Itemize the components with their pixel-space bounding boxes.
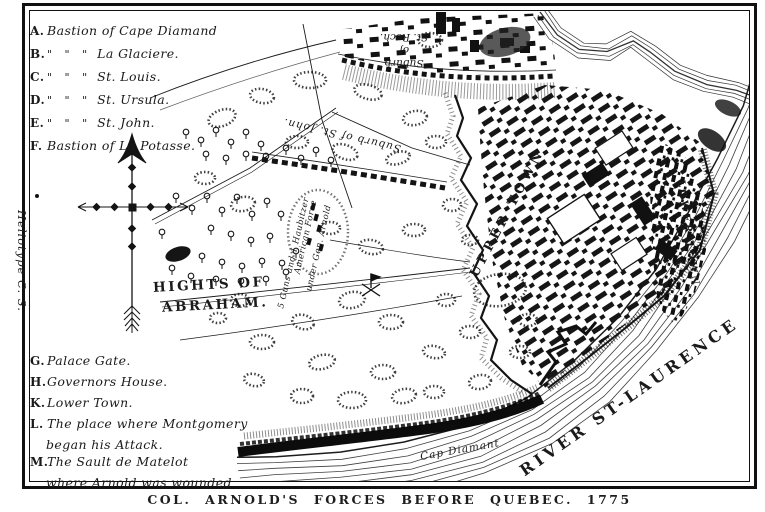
legend-item: E." " "St. John. [30, 113, 217, 133]
legend-key: G. [30, 353, 47, 370]
legend-text: St. Ursula. [97, 90, 169, 109]
legend-text: Governors House. [47, 373, 168, 390]
legend-key: F. [30, 137, 47, 156]
legend-fortifications: A.Bastion of Cape Diamand B." " "La Glac… [30, 21, 217, 159]
legend-text: St. John. [97, 113, 155, 132]
legend-item: H.Governors House. [30, 373, 248, 391]
legend-item: M.The Sault de Matelot [30, 453, 248, 471]
legend-text: Bastion of Cape Diamand [47, 21, 217, 40]
city-blocks [478, 85, 714, 388]
legend-item: B." " "La Glaciere. [30, 44, 217, 64]
legend-key: M. [30, 454, 47, 471]
legend-item: K.Lower Town. [30, 394, 248, 412]
map-plate: A.Bastion of Cape Diamand B." " "La Glac… [0, 0, 765, 512]
battery-flag-icon [362, 274, 380, 296]
legend-key: A. [30, 22, 47, 41]
legend-text: Bastion of La Potasse. [47, 136, 195, 155]
legend-item: D." " "St. Ursula. [30, 90, 217, 110]
legend-text: Palace Gate. [47, 352, 131, 369]
legend-text: The place where Montgomery [47, 415, 248, 432]
pond [163, 243, 192, 264]
legend-text: St. Louis. [97, 67, 161, 86]
legend-text: The Sault de Matelot [47, 453, 188, 470]
heliotype-credit: Heliotype C. S. [15, 196, 29, 326]
legend-key: B. [30, 45, 47, 64]
legend-text-continued: where Arnold was wounded [46, 474, 248, 491]
legend-key: C. [30, 68, 47, 87]
legend-key: L. [30, 416, 47, 433]
legend-key: H. [30, 374, 47, 391]
legend-item: G.Palace Gate. [30, 352, 248, 370]
legend-item: L.The place where Montgomery [30, 415, 248, 433]
legend-item: F.Bastion of La Potasse. [30, 136, 217, 156]
legend-key: K. [30, 395, 47, 412]
legend-text-continued: began his Attack. [46, 436, 248, 453]
suburb-st-john-row [252, 152, 447, 188]
legend-key: E. [30, 114, 47, 133]
legend-item: C." " "St. Louis. [30, 67, 217, 87]
legend-text: La Glaciere. [97, 44, 179, 63]
map-caption: COL. ARNOLD'S FORCES BEFORE QUEBEC. 1775 [23, 492, 756, 507]
legend-text: Lower Town. [47, 394, 133, 411]
legend-places: G.Palace Gate. H.Governors House. K.Lowe… [30, 352, 248, 491]
label-suburb-st-roch: Suburb of St. Roch. [364, 30, 444, 69]
legend-key: D. [30, 91, 47, 110]
legend-item: A.Bastion of Cape Diamand [30, 21, 217, 41]
